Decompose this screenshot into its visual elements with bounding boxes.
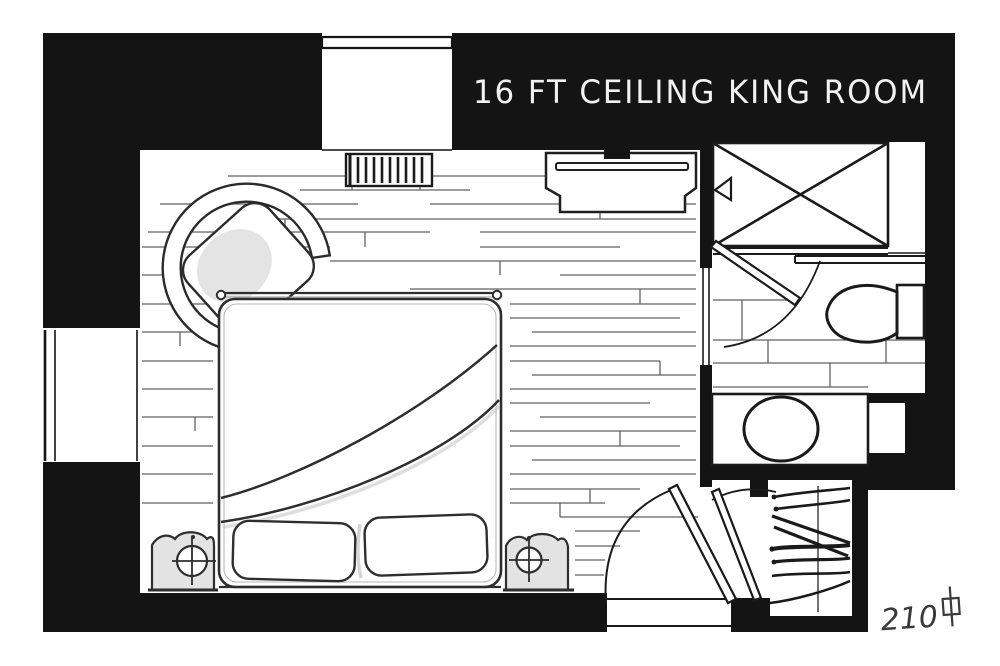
wall-top-left — [43, 33, 322, 150]
floor-plan-image: 16 FT CEILING KING ROOM 210 — [0, 0, 1000, 666]
rail-post-left — [217, 291, 225, 299]
threshold — [607, 599, 731, 626]
radiator — [346, 154, 432, 186]
room-number-symbol-icon — [942, 586, 961, 627]
wall-closet-bottom — [770, 616, 852, 632]
wall-top-bedroom — [452, 142, 712, 150]
doorway-jamb — [703, 268, 709, 365]
window-left — [45, 330, 137, 461]
wall-niche-right — [905, 393, 955, 455]
wall-niche-bottom — [868, 453, 955, 490]
tv — [556, 163, 688, 170]
wall-right — [925, 142, 955, 405]
wall-vanity-south — [700, 465, 868, 480]
bathroom — [703, 143, 925, 465]
entry-door-leaf — [669, 485, 736, 603]
tv-mount — [604, 150, 630, 159]
entry-door-arc — [606, 490, 671, 604]
shower-curb — [713, 248, 888, 254]
rail-post-right — [493, 291, 501, 299]
toilet-bowl — [827, 285, 897, 342]
wall-entry-stub — [731, 598, 770, 632]
pillow — [364, 514, 488, 576]
closet-hangers — [769, 488, 850, 603]
wall-bottom — [43, 593, 607, 632]
bathroom-door-leaf — [711, 241, 800, 305]
toilet-tank — [897, 285, 924, 338]
room-number: 210 — [879, 599, 939, 638]
sink-basin — [744, 397, 818, 461]
wall-left-upper — [43, 150, 140, 328]
wall-divider-upper — [700, 142, 712, 268]
floor-plan-drawing: 16 FT CEILING KING ROOM 210 — [0, 0, 1000, 666]
plan-title: 16 FT CEILING KING ROOM — [473, 73, 928, 111]
bathroom-door-arc — [724, 261, 820, 347]
king-bed — [217, 291, 501, 587]
wall-niche-top — [868, 393, 905, 403]
pillow — [232, 520, 355, 581]
room-number-group: 210 — [879, 586, 961, 638]
nightstand-left — [148, 532, 218, 590]
half-wall — [795, 256, 925, 263]
wall-closet-right — [852, 478, 868, 632]
dresser-tv-console — [546, 150, 696, 212]
window-top — [322, 37, 452, 150]
nightstand-right — [503, 534, 574, 590]
